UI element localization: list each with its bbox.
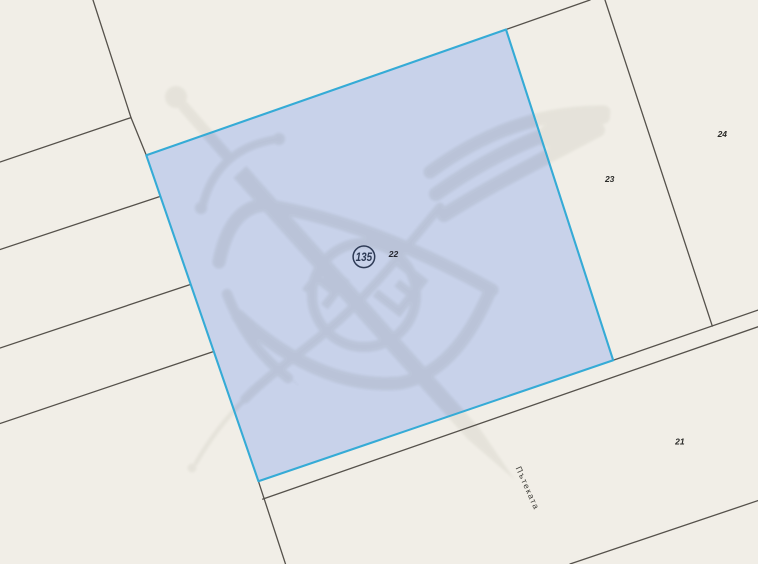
svg-text:22: 22 — [388, 249, 399, 259]
svg-text:135: 135 — [356, 250, 373, 264]
svg-text:23: 23 — [604, 174, 615, 184]
svg-text:21: 21 — [674, 436, 685, 446]
svg-text:24: 24 — [717, 129, 728, 139]
